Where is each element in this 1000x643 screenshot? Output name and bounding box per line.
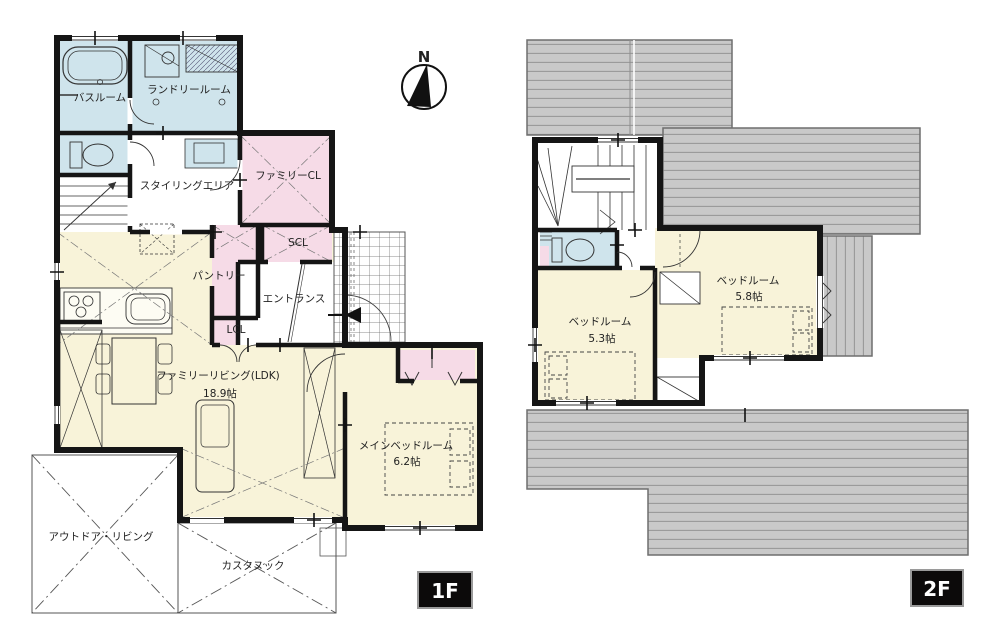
family-living-size: 18.9帖 bbox=[203, 387, 237, 400]
floor2-badge-label: 2F bbox=[923, 577, 951, 601]
family-closet-label: ファミリーCL bbox=[255, 170, 321, 182]
custom-nook-label: カスタヌック bbox=[222, 560, 285, 572]
bedroom-right-label: ベッドルーム bbox=[717, 275, 780, 287]
living-closet-label: LCL bbox=[226, 324, 245, 336]
floor1-badge-label: 1F bbox=[431, 579, 459, 603]
floor2-badge: 2F bbox=[911, 570, 963, 606]
outdoor-living-label: アウトドア・リビング bbox=[49, 530, 154, 543]
main-bedroom-size: 6.2帖 bbox=[393, 455, 421, 468]
floor1-stairs bbox=[57, 177, 130, 232]
bedroom-left-size: 5.3帖 bbox=[588, 332, 616, 345]
bedroom-left-label: ベッドルーム bbox=[569, 316, 632, 328]
bedroom-right-size: 5.8帖 bbox=[735, 290, 763, 303]
floorplan-drawing: バスルーム ランドリールーム スタイリングエリア ファミリーCL SCL パント… bbox=[0, 0, 1000, 643]
pantry-label: パントリー bbox=[192, 270, 245, 282]
family-living-label: ファミリーリビング(LDK) bbox=[156, 369, 280, 382]
floor2-plan: ベッドルーム 5.8帖 ベッドルーム 5.3帖 2F bbox=[527, 40, 968, 606]
floorplan-canvas: バスルーム ランドリールーム スタイリングエリア ファミリーCL SCL パント… bbox=[0, 0, 1000, 643]
floor1-badge: 1F bbox=[418, 572, 472, 608]
compass-north-label: N bbox=[418, 48, 431, 66]
styling-area-label: スタイリングエリア bbox=[140, 179, 235, 192]
entrance-label: エントランス bbox=[263, 293, 326, 305]
shoes-closet-label: SCL bbox=[288, 237, 308, 249]
laundry-room-label: ランドリールーム bbox=[147, 84, 231, 96]
main-bedroom-label: メインベッドルーム bbox=[359, 440, 453, 452]
bathroom-label: バスルーム bbox=[74, 92, 126, 104]
compass-north-icon: N bbox=[402, 48, 446, 109]
floor1-plan: バスルーム ランドリールーム スタイリングエリア ファミリーCL SCL パント… bbox=[32, 31, 480, 613]
